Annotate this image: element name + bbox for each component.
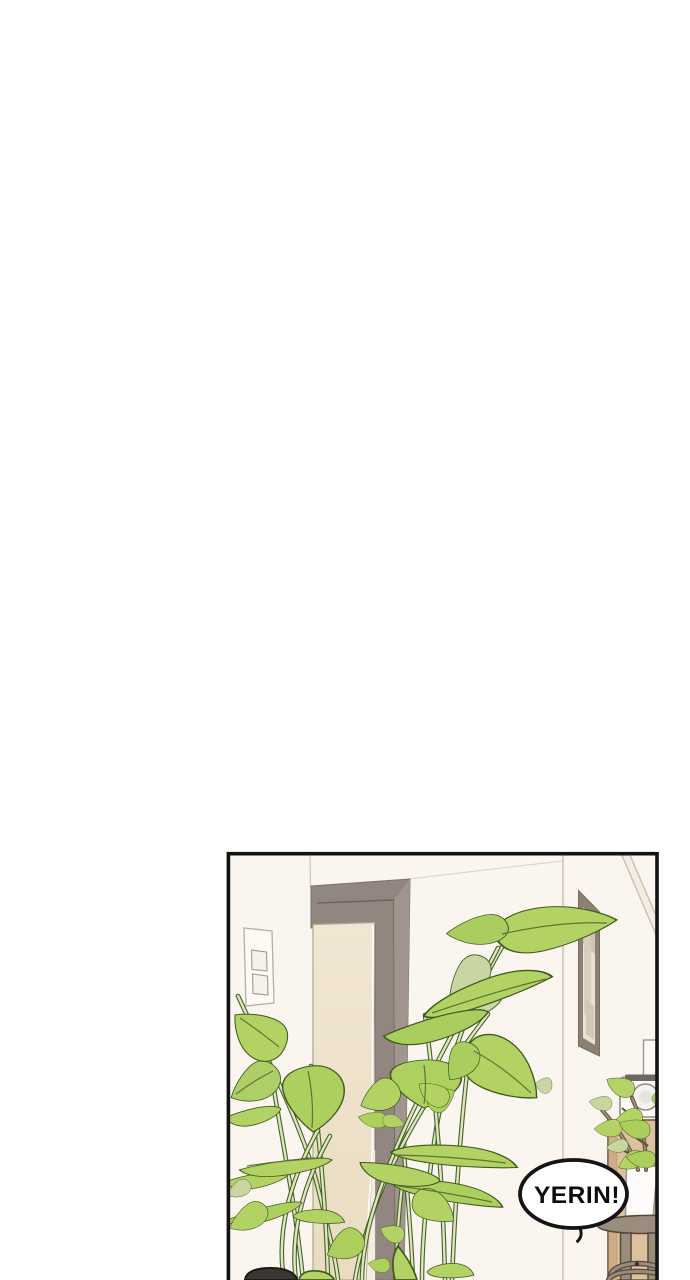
svg-text:YERIN!: YERIN!: [534, 1182, 620, 1209]
